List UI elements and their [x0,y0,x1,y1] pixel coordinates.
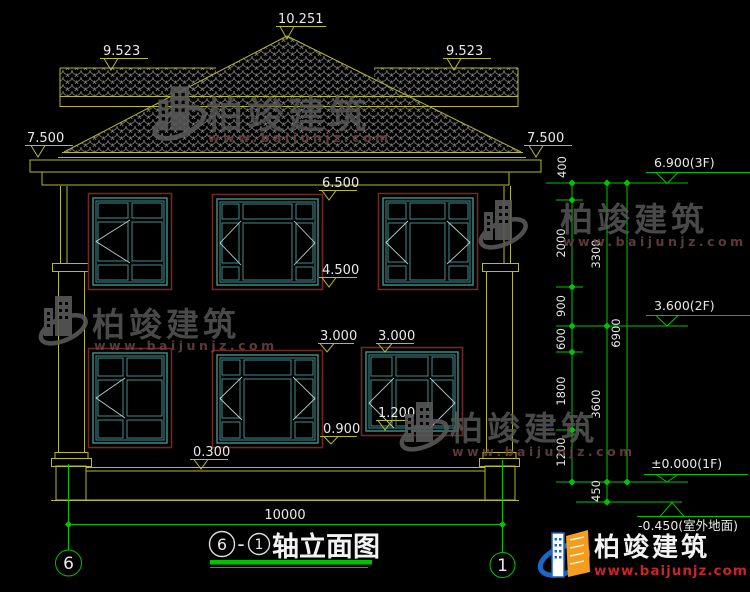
dim-floor2-window-top: 6.500 [319,176,359,200]
casement-symbol [447,221,470,264]
plinth [51,468,519,501]
dim-side-ridge-left-label: 9.523 [103,44,140,59]
level-marker-roof: 6.900(3F) [646,155,750,184]
drawing-title: 6 - 1 轴立面图 [210,531,381,568]
dim-floor2-window-sill-label: 4.500 [322,263,359,278]
dim-floor1-window-top-right-label: 3.000 [378,329,415,344]
dim-floor2-window-sill: 4.500 [319,263,359,287]
logo-site-text: www.baijunjz.com [594,563,748,579]
dim-eave-left: 7.500 [25,131,73,157]
watermark-site: www.baijunjz.com [563,234,747,249]
axis-left-number: 6 [63,554,74,574]
watermark-brand: 柏竣建筑 [450,409,598,448]
window [379,194,478,290]
title-separator: - [237,532,244,556]
level-floor1-label: ±0.000(1F) [651,456,722,471]
window-trim [89,349,172,448]
level-floor2-label: 3.600(2F) [654,298,715,313]
dim-eave-right: 7.500 [524,131,572,157]
title-text: 轴立面图 [272,531,380,563]
dim-side-ridge-right-label: 9.523 [446,44,483,59]
window-frame [383,198,473,285]
window-frame [217,355,318,443]
window-frame [93,353,167,443]
casement-symbol [96,378,125,418]
title-bubble-right-number: 1 [255,537,264,553]
dim-600: 600 [554,328,568,350]
casement-symbol [220,221,241,265]
dim-6900: 6900 [609,318,623,347]
dim-floor1-window-sill-mid: 0.900 [320,422,360,444]
company-logo: 柏竣建筑 www.baijunjz.com [536,530,748,581]
casement-symbol [96,220,130,263]
watermark-left: 柏竣建筑 www.baijunjz.com [37,296,278,353]
window [89,194,172,290]
dim-450: 450 [589,480,603,502]
level-roof-label: 6.900(3F) [654,155,715,170]
dim-400: 400 [555,156,569,178]
watermark-site: www.baijunjz.com [208,130,392,145]
level-marker-floor1: ±0.000(1F) [644,456,748,482]
eave-lines [58,153,526,158]
cad-canvas: 10.251 9.523 9.523 7.500 7.500 6.500 [0,0,750,592]
watermark-site: www.baijunjz.com [94,338,278,353]
dim-total-width: 10000 [264,508,305,523]
window-trim [213,195,323,290]
window-trim [213,351,323,448]
watermark-site: www.baijunjz.com [452,444,636,459]
dimension-ticks [65,179,631,528]
window [89,349,172,448]
axis-right-number: 1 [497,556,508,576]
cornice-upper [30,160,541,172]
watermark-right: 柏竣建筑 www.baijunjz.com [477,200,747,253]
casement-symbol [294,221,315,265]
logo-brand-text: 柏竣建筑 [594,532,710,563]
level-ground-label: -0.450(室外地面) [638,518,738,533]
dim-side-ridge-right: 9.523 [443,44,491,70]
window [213,351,323,448]
dim-ridge-label: 10.251 [278,12,324,27]
logo-tower [552,533,564,577]
title-bubble-left-number: 6 [217,535,227,554]
dim-floor1-window-top-mid-label: 3.000 [320,329,357,344]
dim-floor1-window-top-mid: 3.000 [318,329,357,352]
elevation-drawing: 10.251 9.523 9.523 7.500 7.500 6.500 [0,0,750,592]
window [213,195,323,290]
window-trim [89,194,172,290]
window-frame [93,198,167,285]
cornice-lower [42,172,509,185]
dim-eave-right-label: 7.500 [527,131,564,146]
title-underline-thick [210,560,372,565]
level-marker-floor2: 3.600(2F) [646,298,750,326]
casement-symbol [220,377,242,420]
window-trim [379,194,478,290]
dim-900: 900 [554,295,568,317]
dim-ridge: 10.251 [276,12,326,39]
dim-1800: 1800 [554,376,568,405]
level-marker-ground: -0.450(室外地面) [637,503,750,534]
logo-building [566,530,590,577]
dim-floor1-window-sill-mid-label: 0.900 [323,422,360,437]
casement-symbol [386,221,408,264]
dim-floor2-window-top-label: 6.500 [322,176,359,191]
bottom-dimension: 10000 [69,508,503,525]
dim-plinth-top-label: 0.300 [193,445,230,460]
window-frame [217,199,318,285]
dim-plinth-top: 0.300 [190,445,230,469]
casement-symbol [293,377,315,420]
dim-floor1-window-top-right: 3.000 [376,329,415,352]
dim-eave-left-label: 7.500 [27,131,64,146]
dim-side-ridge-left: 9.523 [100,44,148,70]
